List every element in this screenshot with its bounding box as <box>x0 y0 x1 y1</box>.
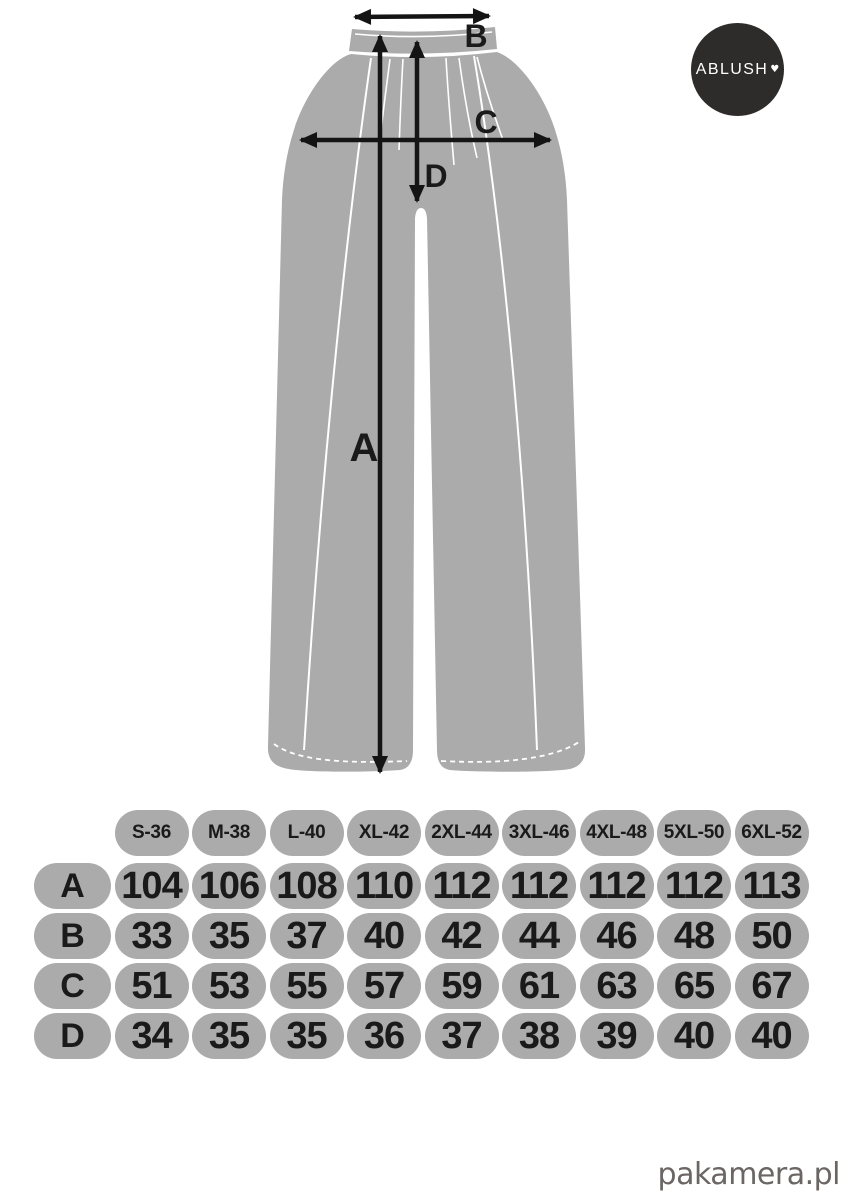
value-cell: 67 <box>735 963 809 1009</box>
value-cell: 112 <box>580 863 654 909</box>
measure-label-b: B <box>464 18 487 54</box>
value-cell: 65 <box>657 963 731 1009</box>
size-header-cell: M-38 <box>192 810 266 856</box>
value-cell: 110 <box>347 863 421 909</box>
value-cell: 40 <box>347 913 421 959</box>
measurement-row-B: B333537404244464850 <box>34 913 809 959</box>
value-cell: 63 <box>580 963 654 1009</box>
measure-label-a: A <box>350 426 379 470</box>
measurement-row-A: A104106108110112112112112113 <box>34 863 809 909</box>
value-cell: 42 <box>425 913 499 959</box>
row-label-C: C <box>34 963 111 1009</box>
value-cell: 104 <box>115 863 189 909</box>
size-header-cell: 6XL-52 <box>735 810 809 856</box>
brand-logo-text: ABLUSH <box>696 61 768 79</box>
value-cell: 113 <box>735 863 809 909</box>
value-cell: 106 <box>192 863 266 909</box>
value-cell: 40 <box>657 1013 731 1059</box>
value-cell: 50 <box>735 913 809 959</box>
value-cell: 36 <box>347 1013 421 1059</box>
value-cell: 53 <box>192 963 266 1009</box>
value-cell: 108 <box>270 863 344 909</box>
measure-label-c: C <box>474 104 497 140</box>
row-label-B: B <box>34 913 111 959</box>
row-label-A: A <box>34 863 111 909</box>
value-cell: 112 <box>425 863 499 909</box>
pants-diagram: B C D A <box>0 0 849 800</box>
size-header-cell: L-40 <box>270 810 344 856</box>
value-cell: 34 <box>115 1013 189 1059</box>
value-cell: 46 <box>580 913 654 959</box>
value-cell: 35 <box>192 1013 266 1059</box>
measurement-row-C: C515355575961636567 <box>34 963 809 1009</box>
value-cell: 35 <box>270 1013 344 1059</box>
value-cell: 51 <box>115 963 189 1009</box>
value-cell: 59 <box>425 963 499 1009</box>
value-cell: 57 <box>347 963 421 1009</box>
measurement-row-D: D343535363738394040 <box>34 1013 809 1059</box>
brand-logo: ABLUSH♥ <box>691 23 784 116</box>
size-header-cell: XL-42 <box>347 810 421 856</box>
arrow-b <box>355 16 489 17</box>
value-cell: 61 <box>502 963 576 1009</box>
size-header-cell: 5XL-50 <box>657 810 731 856</box>
value-cell: 33 <box>115 913 189 959</box>
size-header-cell: 4XL-48 <box>580 810 654 856</box>
value-cell: 44 <box>502 913 576 959</box>
value-cell: 35 <box>192 913 266 959</box>
value-cell: 55 <box>270 963 344 1009</box>
value-cell: 38 <box>502 1013 576 1059</box>
measure-label-d: D <box>424 158 447 194</box>
value-cell: 112 <box>502 863 576 909</box>
heart-icon: ♥ <box>770 64 779 75</box>
size-table: S-36M-38L-40XL-422XL-443XL-464XL-485XL-5… <box>34 810 809 1063</box>
size-header-cell: 3XL-46 <box>502 810 576 856</box>
size-header-row: S-36M-38L-40XL-422XL-443XL-464XL-485XL-5… <box>34 810 809 856</box>
size-header-cell: S-36 <box>115 810 189 856</box>
value-cell: 40 <box>735 1013 809 1059</box>
value-cell: 112 <box>657 863 731 909</box>
value-cell: 37 <box>270 913 344 959</box>
row-label-D: D <box>34 1013 111 1059</box>
value-cell: 37 <box>425 1013 499 1059</box>
size-header-cell: 2XL-44 <box>425 810 499 856</box>
value-cell: 39 <box>580 1013 654 1059</box>
size-chart-image: B C D A ABLUSH♥ S-36M-38L-40XL-422XL-443… <box>0 0 849 1200</box>
watermark: pakamera.pl <box>658 1157 840 1192</box>
value-cell: 48 <box>657 913 731 959</box>
